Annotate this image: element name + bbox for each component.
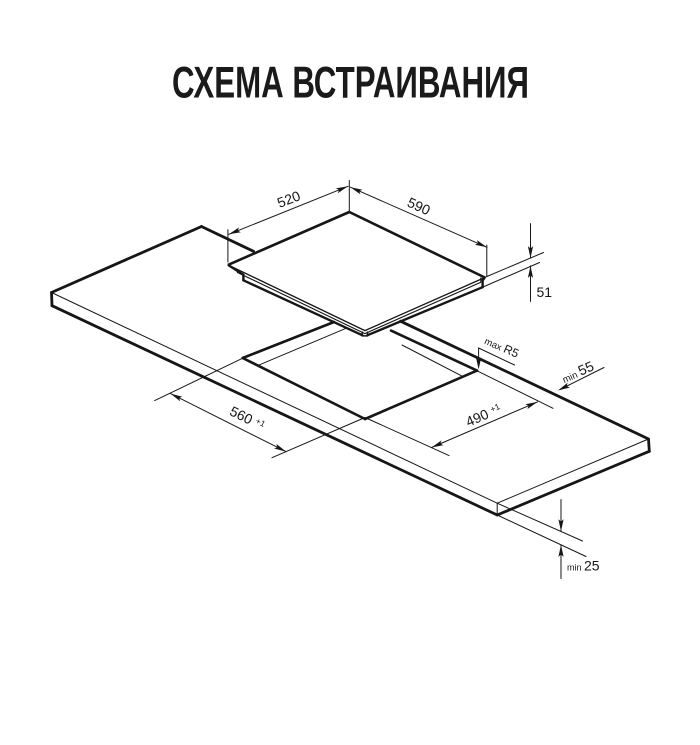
- svg-text:СХЕМА ВСТРАИВАНИЯ: СХЕМА ВСТРАИВАНИЯ: [172, 59, 529, 108]
- svg-text:51: 51: [537, 284, 553, 300]
